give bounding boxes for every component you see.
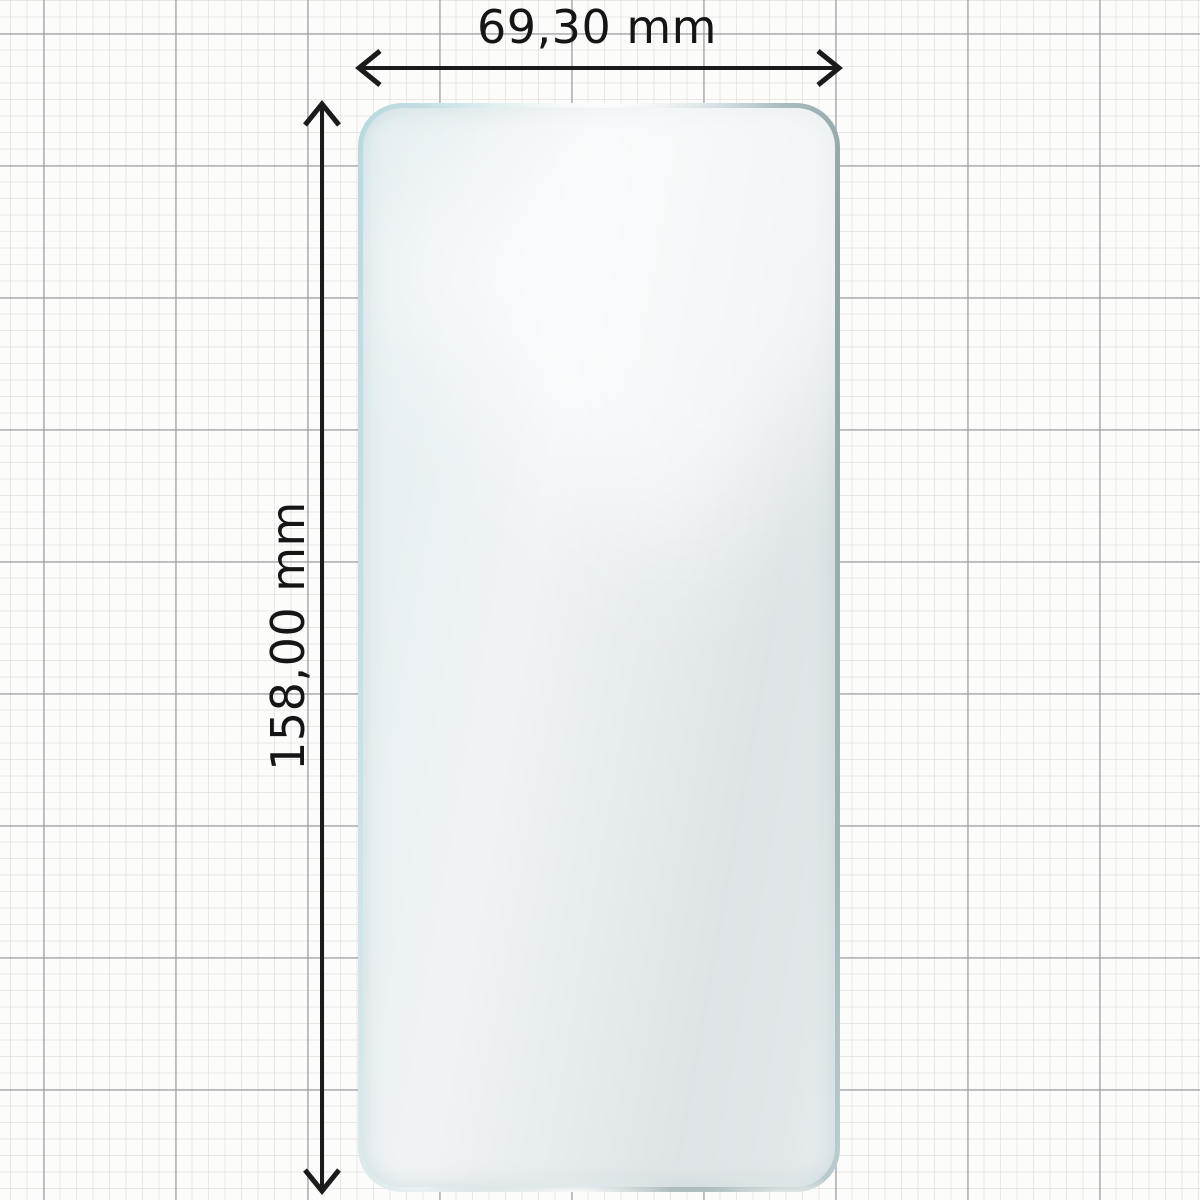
screen-protector-film bbox=[358, 103, 840, 1192]
film-reflection-highlight bbox=[363, 108, 835, 576]
film-surface bbox=[363, 108, 835, 1187]
width-dimension-arrow-icon bbox=[359, 51, 839, 85]
height-dimension-label: 158,00 mm bbox=[261, 501, 315, 771]
width-dimension-label: 69,30 mm bbox=[477, 0, 717, 54]
dimension-diagram-canvas: 69,30 mm 158,00 mm bbox=[0, 0, 1200, 1200]
